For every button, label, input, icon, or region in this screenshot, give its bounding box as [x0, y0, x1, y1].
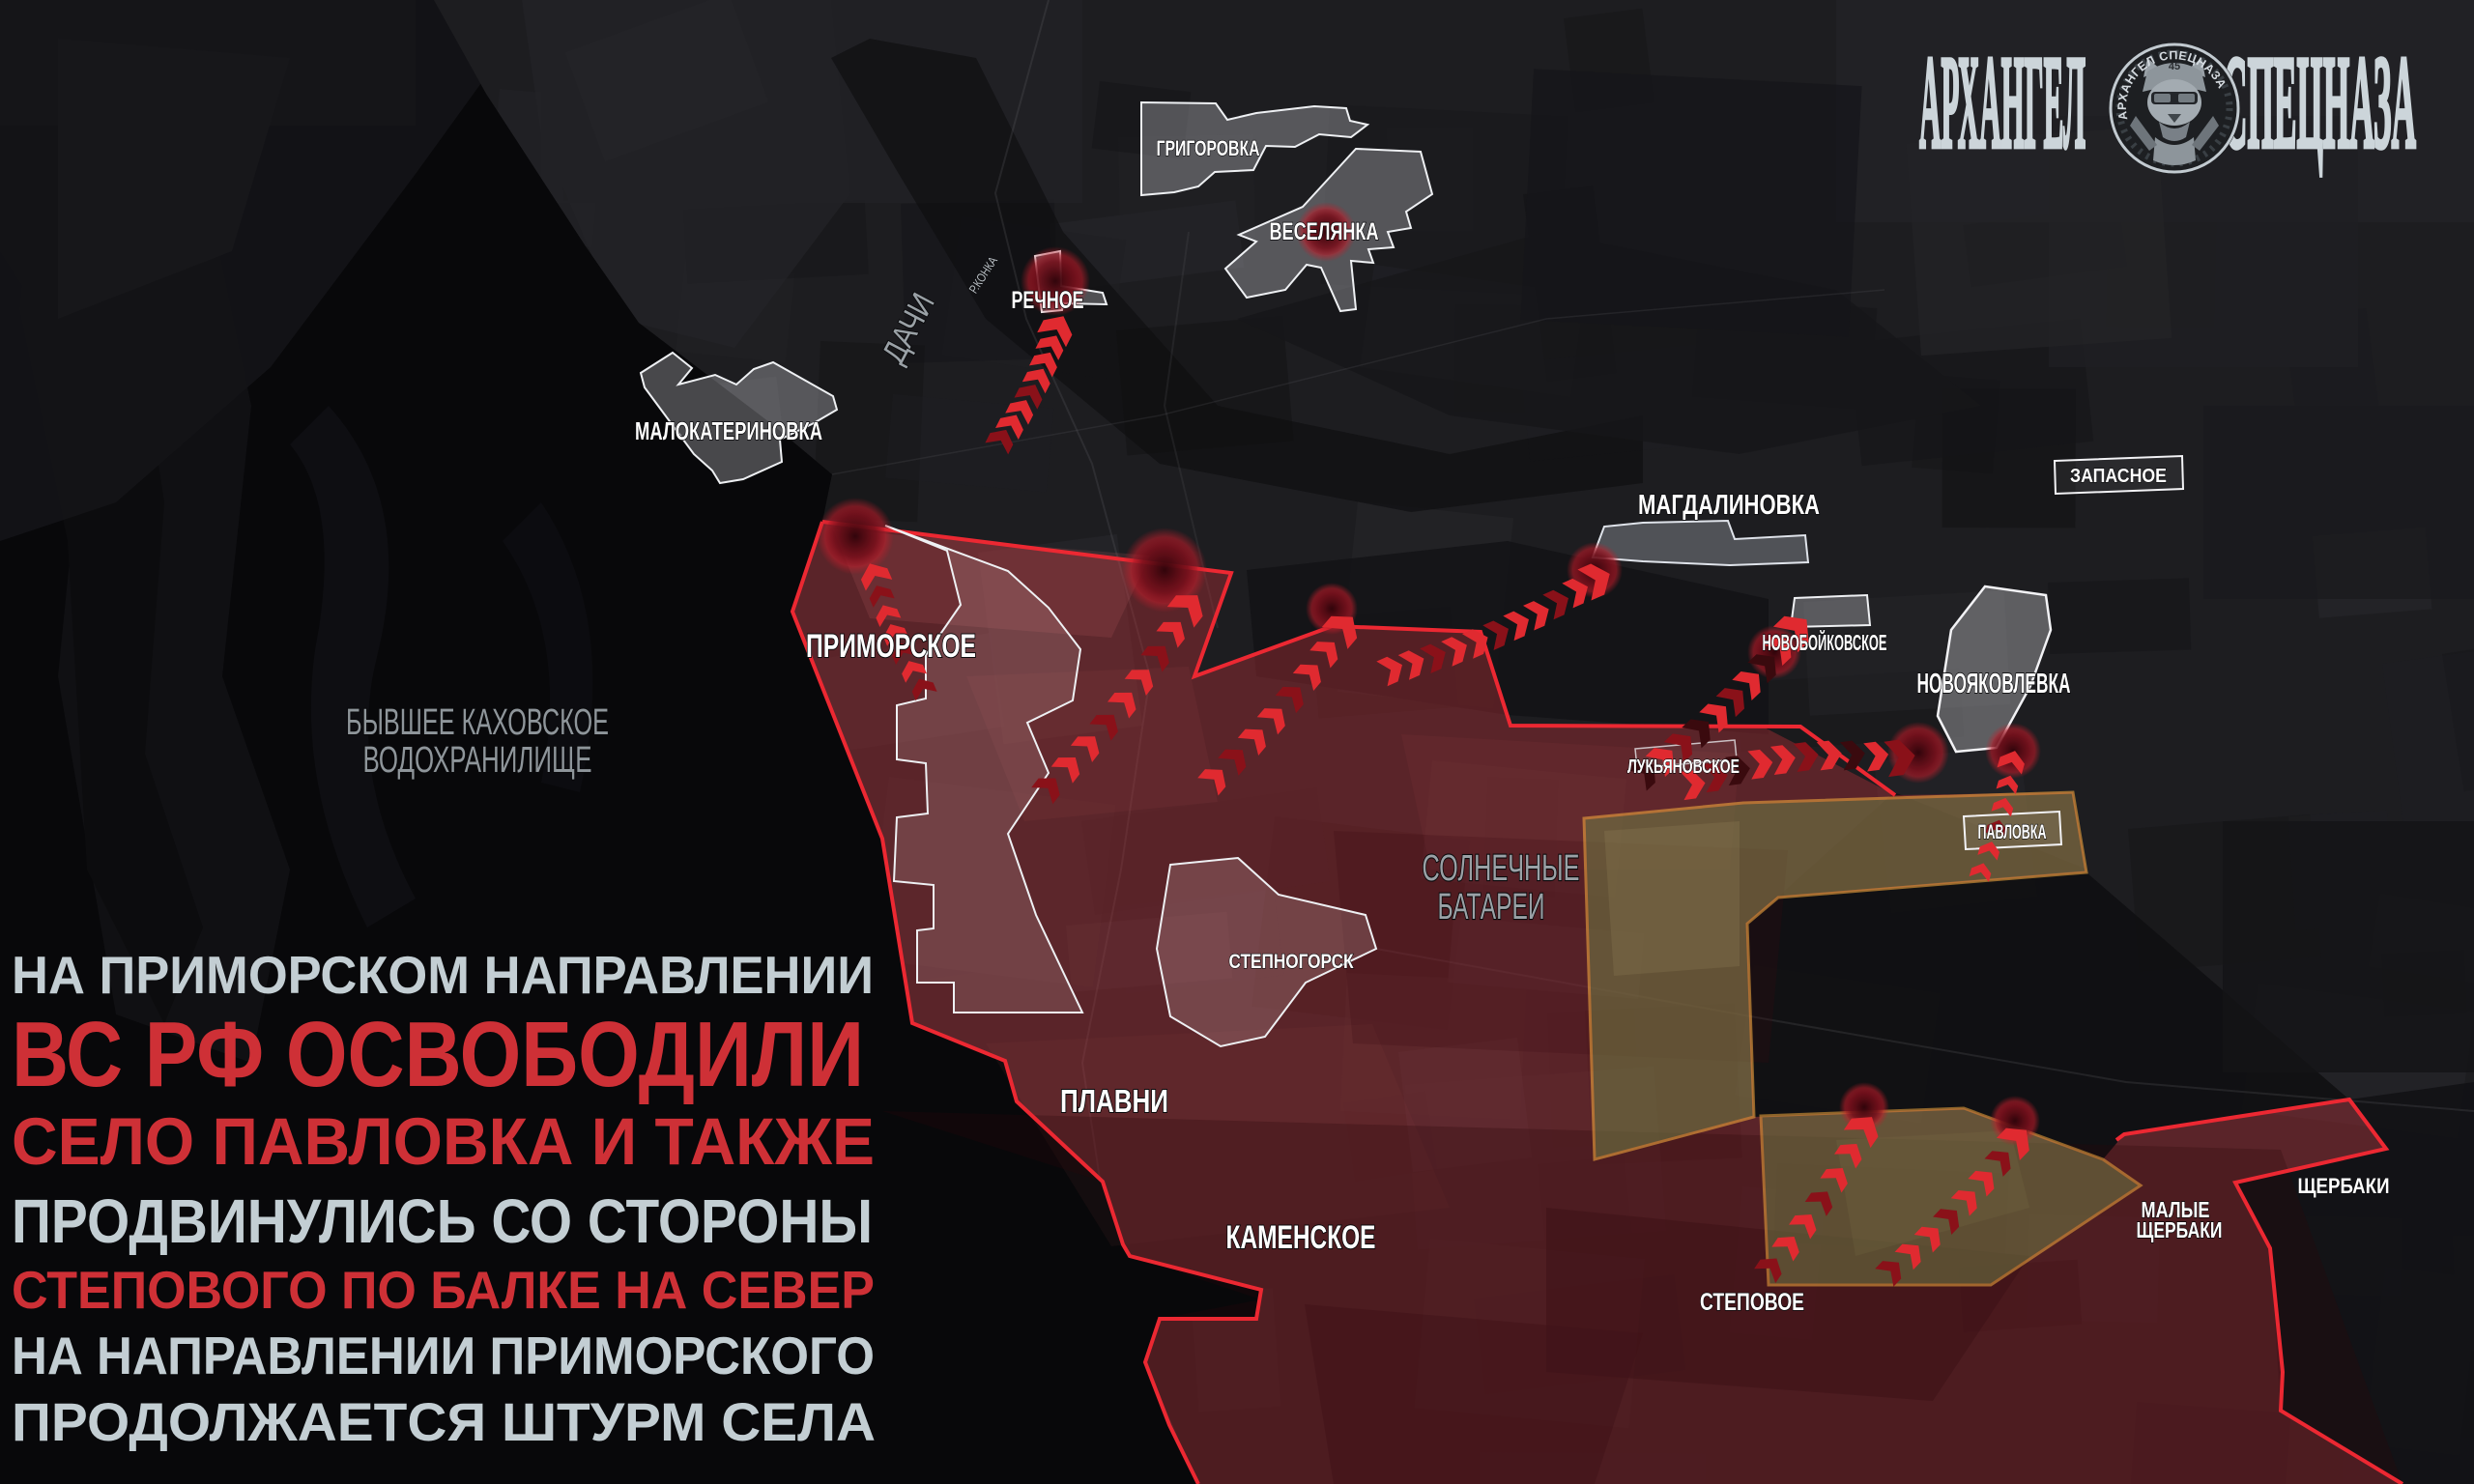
svg-text:ПРОДОЛЖАЕТСЯ ШТУРМ СЕЛА: ПРОДОЛЖАЕТСЯ ШТУРМ СЕЛА: [12, 1391, 876, 1452]
svg-text:СТЕПНОГОРСК: СТЕПНОГОРСК: [1229, 951, 1354, 973]
svg-text:АРХАНГЕЛ: АРХАНГЕЛ: [1919, 29, 2086, 177]
svg-text:ЩЕРБАКИ: ЩЕРБАКИ: [2137, 1217, 2223, 1242]
svg-text:ПРОДВИНУЛИСЬ СО СТОРОНЫ: ПРОДВИНУЛИСЬ СО СТОРОНЫ: [12, 1186, 873, 1256]
svg-text:45: 45: [2169, 61, 2180, 72]
svg-text:КАМЕНСКОЕ: КАМЕНСКОЕ: [1226, 1219, 1376, 1256]
svg-text:СПЕЦНАЗА: СПЕЦНАЗА: [2223, 29, 2416, 177]
svg-text:НА НАПРАВЛЕНИИ ПРИМОРСКОГО: НА НАПРАВЛЕНИИ ПРИМОРСКОГО: [12, 1326, 875, 1385]
svg-text:СЕЛО ПАВЛОВКА И ТАКЖЕ: СЕЛО ПАВЛОВКА И ТАКЖЕ: [12, 1104, 875, 1179]
svg-text:БЫВШЕЕ КАХОВСКОЕ: БЫВШЕЕ КАХОВСКОЕ: [346, 702, 609, 743]
svg-text:ПЛАВНИ: ПЛАВНИ: [1060, 1083, 1168, 1119]
svg-text:СОЛНЕЧНЫЕ: СОЛНЕЧНЫЕ: [1423, 848, 1580, 889]
svg-text:НА ПРИМОРСКОМ НАПРАВЛЕНИИ: НА ПРИМОРСКОМ НАПРАВЛЕНИИ: [12, 945, 874, 1005]
svg-text:ПРИМОРСКОЕ: ПРИМОРСКОЕ: [806, 628, 976, 665]
svg-text:ПАВЛОВКА: ПАВЛОВКА: [1978, 821, 2047, 843]
svg-text:МАГДАЛИНОВКА: МАГДАЛИНОВКА: [1638, 490, 1820, 521]
svg-text:СТЕПОВОГО ПО БАЛКЕ НА СЕВЕР: СТЕПОВОГО ПО БАЛКЕ НА СЕВЕР: [12, 1260, 875, 1320]
svg-text:СТЕПОВОЕ: СТЕПОВОЕ: [1700, 1289, 1804, 1316]
svg-text:ВОДОХРАНИЛИЩЕ: ВОДОХРАНИЛИЩЕ: [363, 740, 592, 781]
svg-text:ВС РФ ОСВОБОДИЛИ: ВС РФ ОСВОБОДИЛИ: [12, 1003, 864, 1106]
svg-text:МАЛОКАТЕРИНОВКА: МАЛОКАТЕРИНОВКА: [635, 416, 822, 445]
svg-text:ЗАПАСНОЕ: ЗАПАСНОЕ: [2070, 466, 2167, 487]
svg-text:НОВОБОЙКОВСКОЕ: НОВОБОЙКОВСКОЕ: [1763, 629, 1887, 655]
svg-text:ВЕСЕЛЯНКА: ВЕСЕЛЯНКА: [1270, 218, 1379, 245]
svg-text:ЩЕРБАКИ: ЩЕРБАКИ: [2298, 1174, 2390, 1198]
svg-text:ГРИГОРОВКА: ГРИГОРОВКА: [1157, 136, 1260, 160]
svg-text:БАТАРЕИ: БАТАРЕИ: [1438, 887, 1545, 927]
svg-text:ЛУКЬЯНОВСКОЕ: ЛУКЬЯНОВСКОЕ: [1627, 756, 1740, 778]
svg-text:РЕЧНОЕ: РЕЧНОЕ: [1012, 287, 1084, 314]
svg-text:НОВОЯКОВЛЕВКА: НОВОЯКОВЛЕВКА: [1917, 669, 2071, 699]
